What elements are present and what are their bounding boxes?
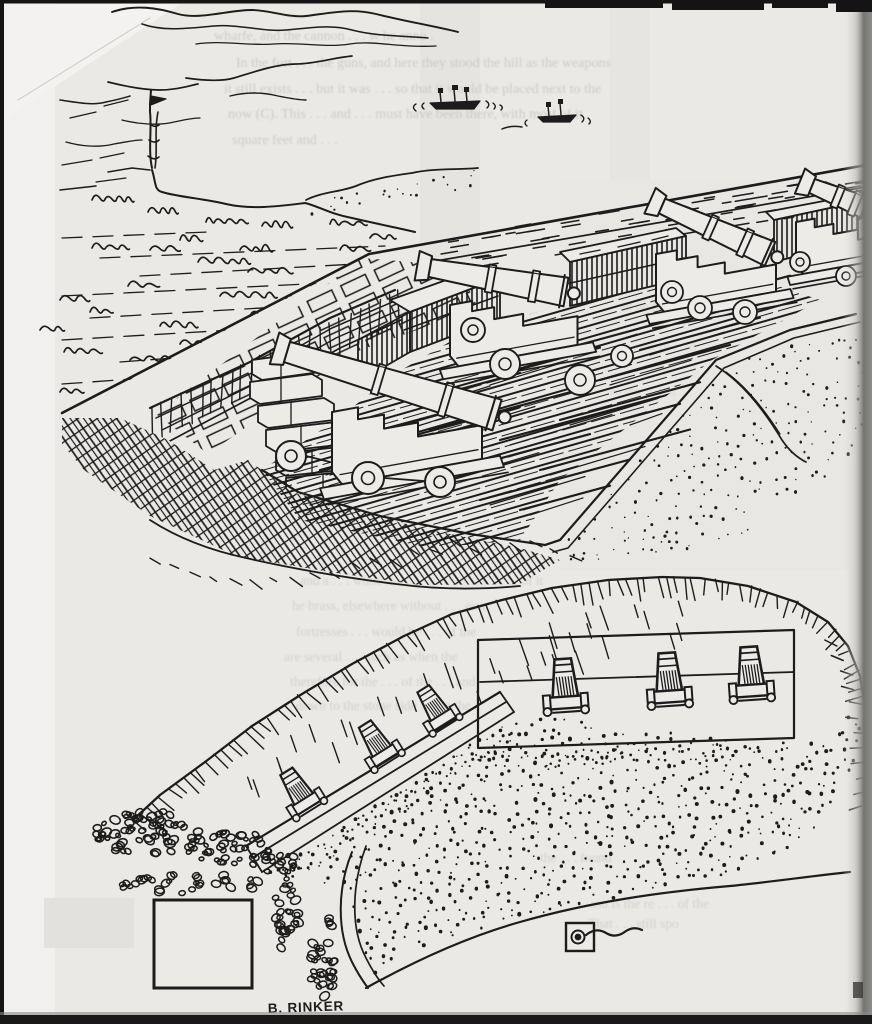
svg-text:are several . . . such as when: are several . . . such as when the	[284, 649, 458, 664]
svg-text:it still exists . . . but it w: it still exists . . . but it was . . . s…	[224, 82, 601, 97]
svg-text:the . . . found: the . . . found	[540, 850, 612, 865]
svg-text:square feet and . . .: square feet and . . .	[232, 133, 338, 148]
svg-text:now (C). This . . . and . . .: now (C). This . . . and . . . must have …	[228, 107, 583, 122]
svg-text:aso is the re . . . of the: aso is the re . . . of the	[590, 896, 709, 911]
svg-text:therefore for the . . . of the: therefore for the . . . of the . . . and	[290, 674, 476, 689]
